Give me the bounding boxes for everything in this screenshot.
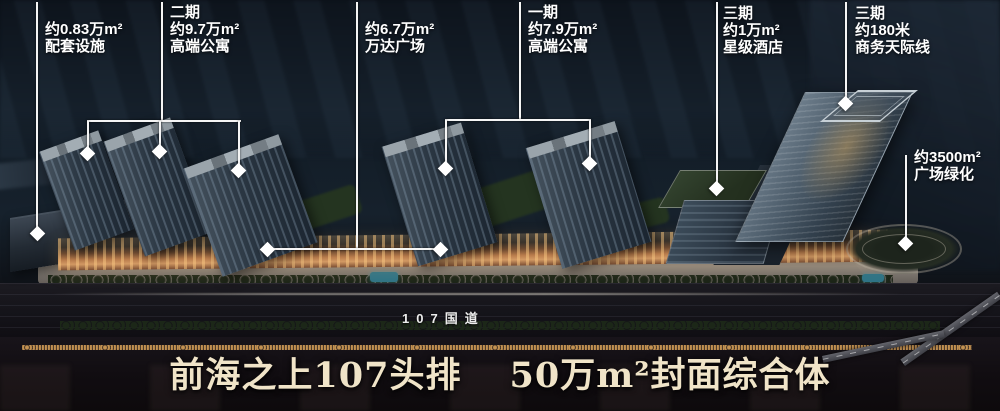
callout-text: 高端公寓 bbox=[170, 38, 239, 55]
callout-text: 约0.83万m² bbox=[45, 21, 123, 38]
callout-text: 约7.9万m² bbox=[528, 21, 597, 38]
callout-text: 万达广场 bbox=[365, 38, 434, 55]
callout-line bbox=[36, 2, 38, 233]
callout-line bbox=[356, 2, 358, 249]
callout-text: 约180米 bbox=[855, 22, 930, 39]
highway-107 bbox=[0, 283, 1000, 337]
callout-text: 一期 bbox=[528, 4, 597, 21]
callout-line bbox=[161, 2, 163, 121]
callout-text: 二期 bbox=[170, 4, 239, 21]
callout-line bbox=[519, 2, 521, 120]
callout-label-skyline: 三期 约180米 商务天际线 bbox=[855, 5, 930, 56]
callout-label-phase2: 二期 约9.7万m² 高端公寓 bbox=[170, 4, 239, 55]
callout-line bbox=[87, 120, 241, 122]
callout-line bbox=[445, 119, 591, 121]
callout-line bbox=[905, 155, 907, 243]
callout-text: 配套设施 bbox=[45, 38, 123, 55]
road-name-label: 107国道 bbox=[402, 308, 485, 327]
callout-text: 约6.7万m² bbox=[365, 21, 434, 38]
callout-line bbox=[267, 248, 441, 250]
callout-text: 三期 bbox=[723, 5, 783, 22]
pool bbox=[862, 274, 884, 282]
callout-label-hotel: 三期 约1万m² 星级酒店 bbox=[723, 5, 783, 56]
callout-text: 星级酒店 bbox=[723, 39, 783, 56]
callout-label-phase1: 一期 约7.9万m² 高端公寓 bbox=[528, 4, 597, 55]
headline-left: 前海之上107头排 bbox=[169, 347, 461, 398]
headline-right: 50万m²封面综合体 bbox=[509, 347, 830, 398]
callout-text: 商务天际线 bbox=[855, 39, 930, 56]
pool bbox=[370, 272, 398, 282]
callout-text: 三期 bbox=[855, 5, 930, 22]
callout-line bbox=[716, 2, 718, 188]
aerial-render-scene: 约0.83万m² 配套设施 二期 约9.7万m² 高端公寓 约6.7万m² 万达… bbox=[0, 0, 1000, 411]
callout-text: 约1万m² bbox=[723, 22, 783, 39]
headline: 前海之上107头排 50万m²封面综合体 bbox=[0, 347, 1000, 398]
callout-label-plaza-green: 约3500m² 广场绿化 bbox=[914, 149, 981, 183]
callout-label-annex: 约0.83万m² 配套设施 bbox=[45, 21, 123, 55]
callout-text: 约9.7万m² bbox=[170, 21, 239, 38]
callout-line bbox=[845, 2, 847, 103]
callout-label-wanda: 约6.7万m² 万达广场 bbox=[365, 21, 434, 55]
callout-text: 约3500m² bbox=[914, 149, 981, 166]
callout-text: 高端公寓 bbox=[528, 38, 597, 55]
callout-text: 广场绿化 bbox=[914, 166, 981, 183]
